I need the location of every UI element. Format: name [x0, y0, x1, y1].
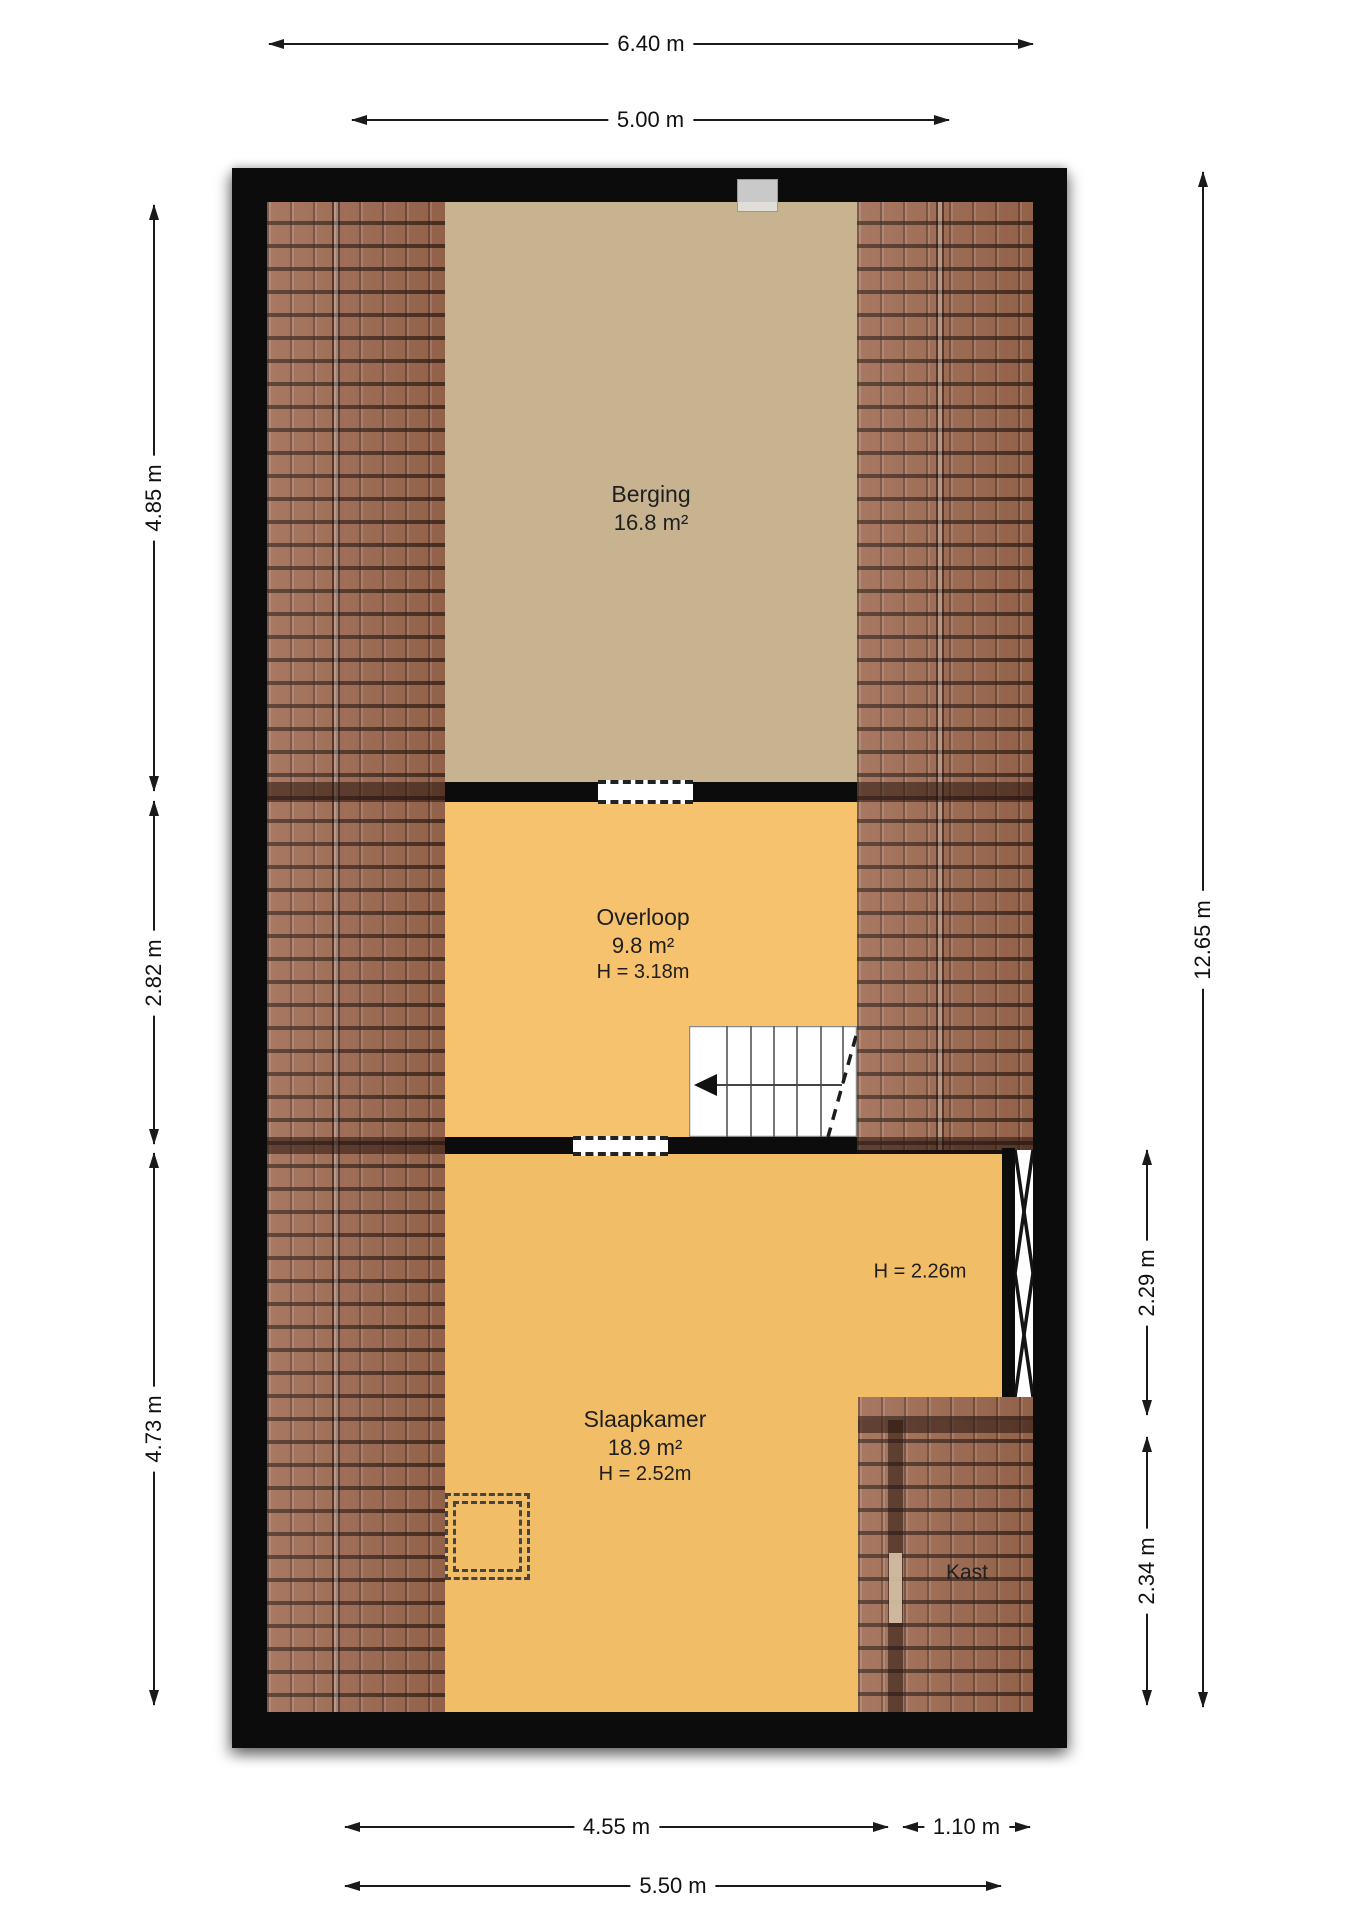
- arrow-up-icon: [149, 1152, 159, 1168]
- overloop-ceiling-height: H = 3.18m: [596, 959, 689, 985]
- cross-hatch: [1015, 1150, 1033, 1397]
- dim-left-overloop: 2.82 m: [153, 801, 155, 1144]
- slaapkamer-name: Slaapkamer: [584, 1405, 707, 1434]
- berging-name: Berging: [611, 480, 690, 509]
- arrow-left-icon: [351, 115, 367, 125]
- staircase: [689, 1026, 857, 1137]
- dim-left-overloop-label: 2.82 m: [141, 930, 167, 1015]
- overloop-area: 9.8 m²: [596, 932, 689, 959]
- dim-left-berging-label: 4.85 m: [141, 455, 167, 540]
- berging-area: 16.8 m²: [611, 509, 690, 536]
- arrow-up-icon: [1142, 1436, 1152, 1452]
- arrow-up-icon: [1198, 171, 1208, 187]
- arrow-right-icon: [1015, 1822, 1031, 1832]
- arrow-down-icon: [1142, 1690, 1152, 1706]
- dim-left-slaapkamer: 4.73 m: [153, 1153, 155, 1705]
- roof-window: [737, 179, 778, 212]
- arrow-down-icon: [1142, 1400, 1152, 1416]
- dim-top-inner: 5.00 m: [352, 119, 949, 121]
- arrow-right-icon: [986, 1881, 1002, 1891]
- void-cross-strip: [1015, 1150, 1033, 1397]
- staircase-drawing: [689, 1026, 857, 1137]
- dim-right-upper: 2.29 m: [1146, 1150, 1148, 1415]
- slaapkamer-area: 18.9 m²: [584, 1434, 707, 1461]
- arrow-up-icon: [1142, 1149, 1152, 1165]
- dim-right-overall-label: 12.65 m: [1190, 891, 1216, 989]
- dim-bottom-slaapkamer-label: 4.55 m: [574, 1814, 659, 1840]
- label-overloop: Overloop 9.8 m² H = 3.18m: [596, 903, 689, 985]
- kast-wall-north: [858, 1420, 1033, 1433]
- dim-left-slaapkamer-label: 4.73 m: [141, 1386, 167, 1471]
- arrow-down-icon: [1198, 1692, 1208, 1708]
- arrow-right-icon: [873, 1822, 889, 1832]
- dim-right-overall: 12.65 m: [1202, 172, 1204, 1707]
- arrow-down-icon: [149, 776, 159, 792]
- dim-right-lower: 2.34 m: [1146, 1437, 1148, 1705]
- dim-top-overall: 6.40 m: [269, 43, 1033, 45]
- kast-door: [889, 1553, 902, 1623]
- arrow-right-icon: [1018, 39, 1034, 49]
- dim-right-upper-label: 2.29 m: [1134, 1240, 1160, 1325]
- label-low-ceiling: H = 2.26m: [874, 1261, 967, 1284]
- arrow-down-icon: [149, 1129, 159, 1145]
- wall-slaapkamer-right: [1002, 1148, 1015, 1397]
- label-slaapkamer: Slaapkamer 18.9 m² H = 2.52m: [584, 1405, 707, 1487]
- arrow-left-icon: [344, 1822, 360, 1832]
- label-kast: Kast: [946, 1561, 988, 1585]
- arrow-right-icon: [934, 115, 950, 125]
- dashed-void-outline: [445, 1493, 530, 1580]
- kast-roof-block: [858, 1397, 1033, 1712]
- dim-bottom-kast-label: 1.10 m: [924, 1814, 1009, 1840]
- overloop-name: Overloop: [596, 903, 689, 932]
- arrow-left-icon: [268, 39, 284, 49]
- dim-top-overall-label: 6.40 m: [608, 31, 693, 57]
- arrow-up-icon: [149, 800, 159, 816]
- arrow-up-icon: [149, 204, 159, 220]
- wall-shadow-left-1: [267, 782, 445, 802]
- label-berging: Berging 16.8 m²: [611, 480, 690, 536]
- dim-bottom-slaapkamer: 4.55 m: [345, 1826, 888, 1828]
- dim-right-lower-label: 2.34 m: [1134, 1528, 1160, 1613]
- dim-bottom-kast: 1.10 m: [903, 1826, 1030, 1828]
- door-opening-berging: [598, 780, 693, 804]
- dim-top-inner-label: 5.00 m: [608, 107, 693, 133]
- dim-bottom-overall-label: 5.50 m: [630, 1873, 715, 1899]
- wall-shadow-right-1: [857, 782, 1033, 802]
- dim-bottom-overall: 5.50 m: [345, 1885, 1001, 1887]
- roof-ridge-left: [332, 202, 340, 1712]
- roof-tiles-left: [267, 202, 445, 1712]
- floorplan-page: Berging 16.8 m² Overloop 9.8 m² H = 3.18…: [0, 0, 1358, 1920]
- roof-tiles-right: [857, 202, 1033, 1150]
- arrow-left-icon: [902, 1822, 918, 1832]
- roof-ridge-right: [936, 202, 944, 1150]
- arrow-left-icon: [344, 1881, 360, 1891]
- dashed-void-outline-inner: [453, 1501, 522, 1572]
- slaapkamer-ceiling-height: H = 2.52m: [584, 1461, 707, 1487]
- door-opening-slaapkamer: [573, 1136, 668, 1156]
- wall-shadow-left-2: [267, 1137, 445, 1154]
- dim-left-berging: 4.85 m: [153, 205, 155, 791]
- arrow-down-icon: [149, 1690, 159, 1706]
